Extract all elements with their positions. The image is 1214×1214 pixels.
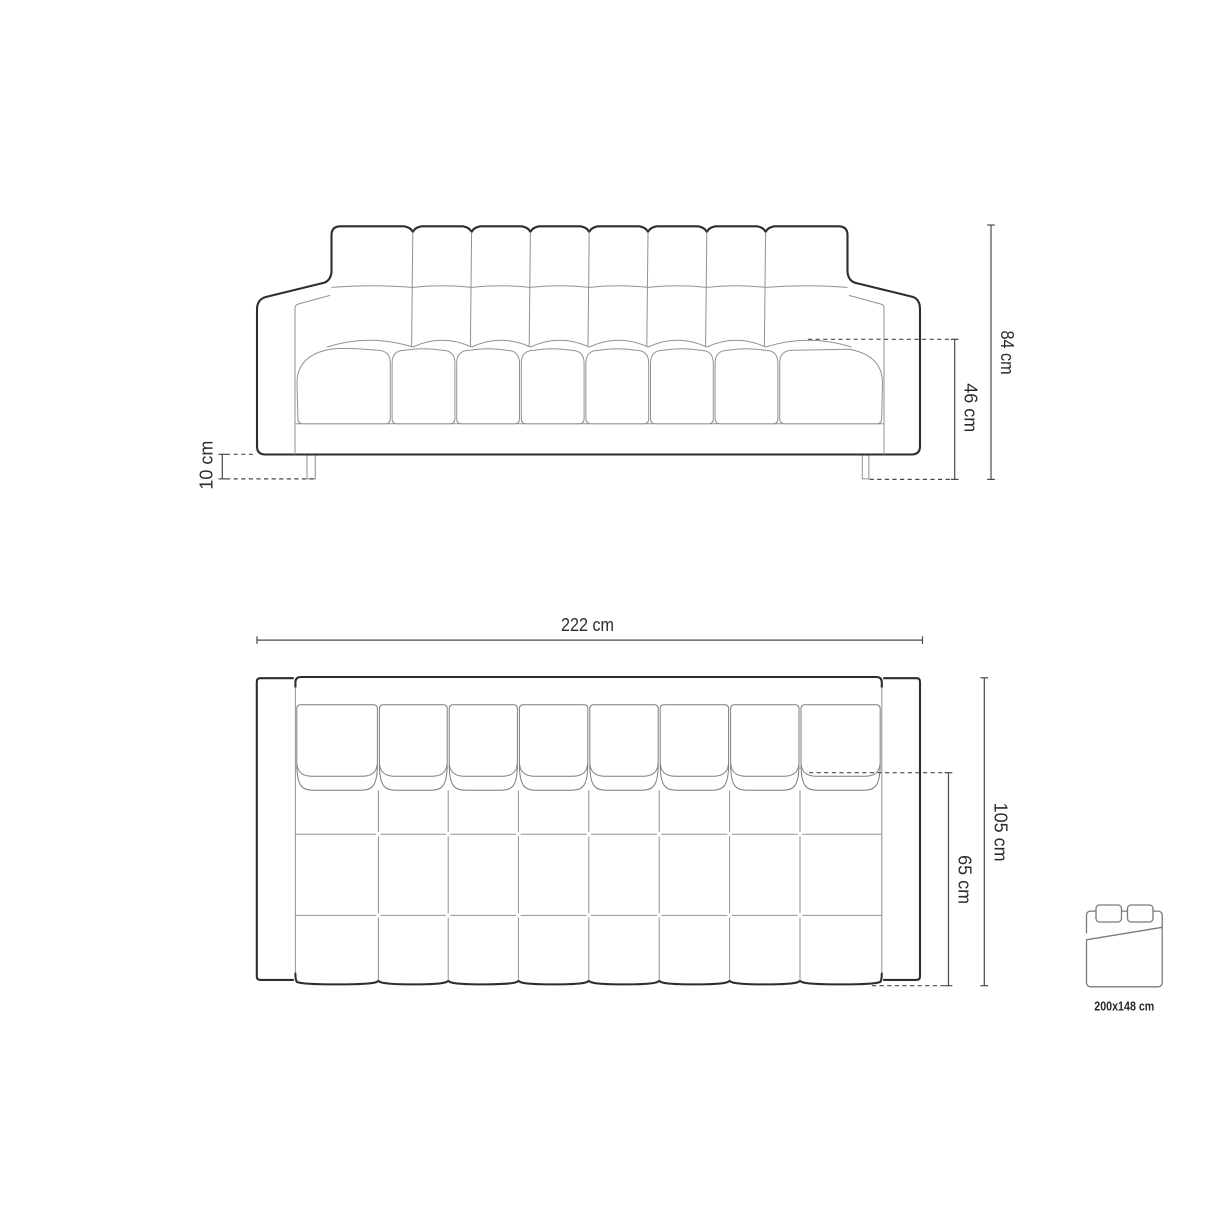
svg-text:200x148 cm: 200x148 cm	[1094, 998, 1154, 1013]
svg-text:46 cm: 46 cm	[961, 383, 981, 432]
svg-text:65 cm: 65 cm	[955, 855, 975, 904]
svg-text:10 cm: 10 cm	[197, 441, 217, 490]
svg-text:105 cm: 105 cm	[990, 803, 1010, 862]
svg-text:84 cm: 84 cm	[997, 330, 1017, 374]
svg-text:222 cm: 222 cm	[561, 615, 614, 635]
